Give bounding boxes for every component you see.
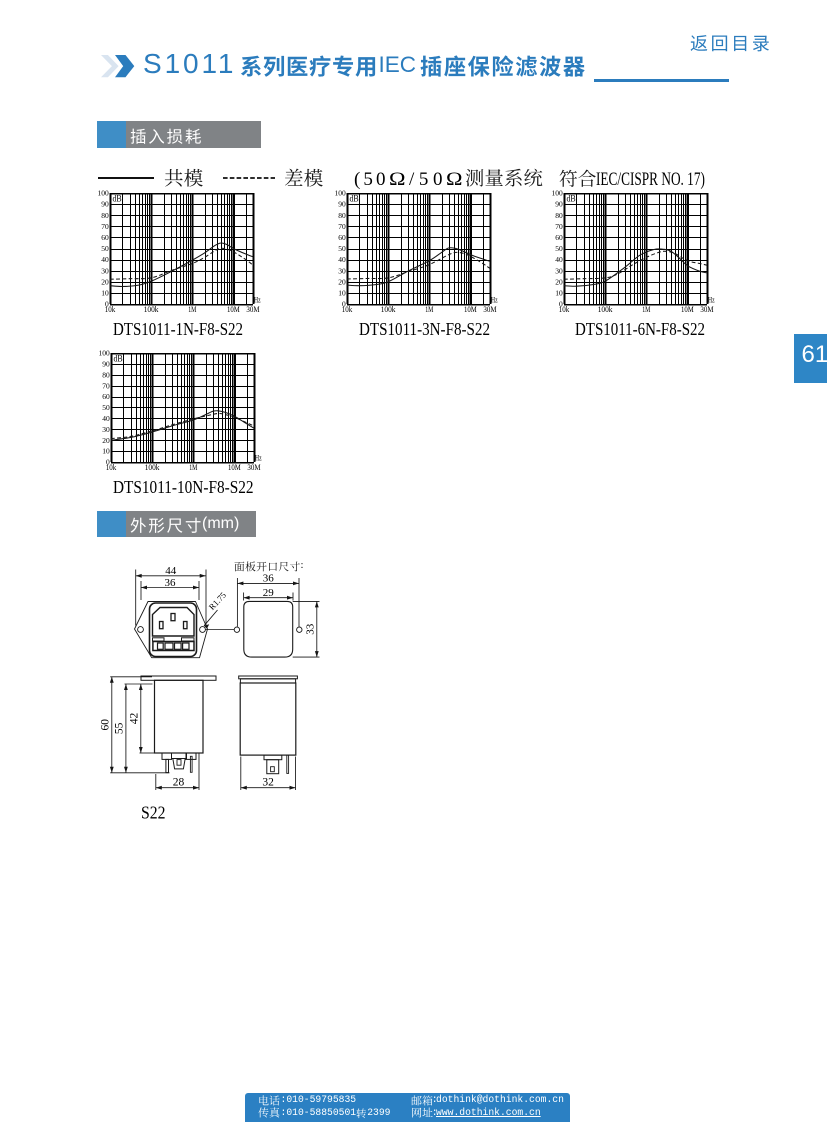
svg-text:50: 50	[338, 244, 346, 253]
svg-text:60: 60	[99, 719, 111, 731]
svg-text:100k: 100k	[598, 304, 613, 314]
svg-text:30: 30	[338, 266, 346, 275]
svg-text:10k: 10k	[342, 304, 353, 314]
svg-text:33: 33	[305, 623, 317, 635]
svg-text:70: 70	[555, 222, 563, 231]
svg-text:80: 80	[101, 211, 109, 220]
svg-text:10M: 10M	[228, 462, 241, 472]
svg-text:20: 20	[102, 436, 110, 445]
svg-text:10M: 10M	[227, 304, 240, 314]
svg-text:40: 40	[102, 414, 110, 423]
svg-text:dB: dB	[350, 194, 359, 204]
svg-text:60: 60	[102, 392, 110, 401]
svg-text:100k: 100k	[144, 304, 159, 314]
svg-text:20: 20	[338, 277, 346, 286]
svg-text:30M: 30M	[700, 304, 713, 314]
svg-text:R1.75: R1.75	[207, 590, 228, 612]
svg-text:10k: 10k	[106, 462, 117, 472]
svg-text:1M: 1M	[425, 304, 433, 314]
svg-text:30M: 30M	[246, 304, 259, 314]
svg-text:100k: 100k	[145, 462, 160, 472]
svg-text:1M: 1M	[189, 462, 197, 472]
svg-text:70: 70	[101, 222, 109, 231]
svg-text:10k: 10k	[105, 304, 116, 314]
svg-text:30M: 30M	[483, 304, 496, 314]
svg-text:36: 36	[263, 573, 275, 585]
svg-text:Hz: Hz	[254, 296, 261, 305]
svg-text:90: 90	[102, 360, 110, 369]
svg-text:1M: 1M	[642, 304, 650, 314]
svg-text:Hz: Hz	[255, 454, 262, 463]
svg-text:40: 40	[101, 255, 109, 264]
svg-text:40: 40	[338, 255, 346, 264]
svg-text:50: 50	[102, 403, 110, 412]
svg-text:10: 10	[338, 289, 346, 298]
svg-text:10: 10	[555, 289, 563, 298]
svg-text:DTS1011-10N-F8-S22: DTS1011-10N-F8-S22	[113, 477, 254, 497]
svg-text:80: 80	[555, 211, 563, 220]
svg-text:55: 55	[113, 722, 125, 734]
svg-text:S22: S22	[141, 803, 166, 823]
svg-text:44: 44	[165, 565, 177, 577]
svg-text:70: 70	[102, 381, 110, 390]
svg-text:DTS1011-3N-F8-S22: DTS1011-3N-F8-S22	[359, 319, 490, 339]
svg-text:90: 90	[338, 200, 346, 209]
svg-text:1M: 1M	[188, 304, 196, 314]
svg-text:Hz: Hz	[491, 296, 498, 305]
svg-text:10M: 10M	[464, 304, 477, 314]
svg-text:dB: dB	[114, 354, 123, 364]
svg-text:100k: 100k	[381, 304, 396, 314]
svg-text:90: 90	[101, 200, 109, 209]
svg-text:40: 40	[555, 255, 563, 264]
svg-text:10k: 10k	[559, 304, 570, 314]
svg-text:100: 100	[335, 189, 347, 198]
svg-text:29: 29	[263, 587, 275, 599]
svg-text:30M: 30M	[247, 462, 260, 472]
svg-text:36: 36	[165, 577, 177, 589]
svg-text:90: 90	[555, 200, 563, 209]
svg-text:28: 28	[173, 776, 185, 788]
svg-text:60: 60	[101, 233, 109, 242]
svg-text:70: 70	[338, 222, 346, 231]
svg-text:10M: 10M	[681, 304, 694, 314]
svg-text:80: 80	[102, 370, 110, 379]
svg-text:60: 60	[338, 233, 346, 242]
svg-text:dB: dB	[113, 194, 122, 204]
svg-text:80: 80	[338, 211, 346, 220]
svg-text:Hz: Hz	[708, 296, 715, 305]
svg-text:60: 60	[555, 233, 563, 242]
svg-text:32: 32	[262, 776, 274, 788]
svg-text:30: 30	[555, 266, 563, 275]
svg-text:dB: dB	[567, 194, 576, 204]
svg-text:30: 30	[102, 425, 110, 434]
svg-text:100: 100	[99, 349, 111, 358]
svg-text:50: 50	[101, 244, 109, 253]
svg-text:50: 50	[555, 244, 563, 253]
svg-text:100: 100	[98, 189, 110, 198]
svg-text:20: 20	[555, 277, 563, 286]
svg-text:100: 100	[552, 189, 564, 198]
svg-text:10: 10	[102, 447, 110, 456]
svg-text:42: 42	[128, 713, 140, 725]
svg-text:30: 30	[101, 266, 109, 275]
svg-text:10: 10	[101, 289, 109, 298]
svg-text:20: 20	[101, 277, 109, 286]
svg-text:DTS1011-1N-F8-S22: DTS1011-1N-F8-S22	[113, 319, 243, 339]
svg-text:DTS1011-6N-F8-S22: DTS1011-6N-F8-S22	[575, 319, 705, 339]
